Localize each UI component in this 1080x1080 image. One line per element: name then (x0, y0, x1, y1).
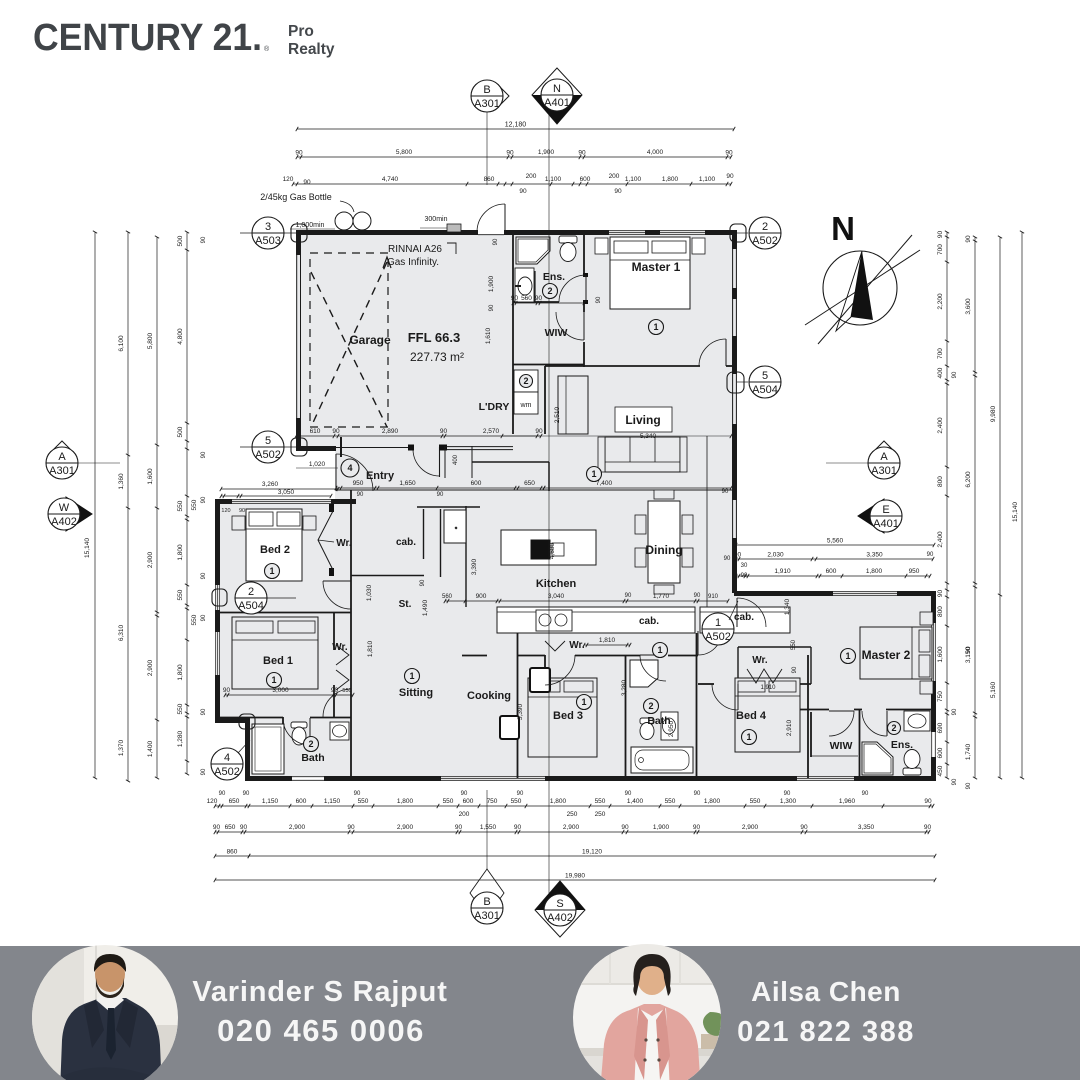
svg-text:90: 90 (693, 824, 701, 831)
svg-text:90: 90 (489, 304, 495, 311)
svg-text:B: B (483, 896, 490, 908)
svg-text:A504: A504 (752, 384, 778, 396)
svg-text:1: 1 (845, 651, 850, 661)
svg-text:600: 600 (937, 747, 944, 758)
svg-text:9,980: 9,980 (990, 405, 997, 422)
svg-text:Dining: Dining (645, 543, 682, 557)
svg-text:12,180: 12,180 (505, 122, 527, 129)
svg-text:800: 800 (937, 606, 944, 617)
svg-text:A301: A301 (871, 465, 897, 477)
svg-text:90: 90 (792, 666, 798, 673)
svg-text:2: 2 (248, 586, 254, 598)
svg-text:1,490: 1,490 (422, 599, 429, 616)
svg-text:550: 550 (443, 798, 454, 805)
svg-text:Varinder S Rajput: Varinder S Rajput (192, 976, 447, 1008)
svg-text:1,960: 1,960 (839, 798, 856, 805)
svg-text:650: 650 (524, 480, 535, 487)
svg-text:2/45kg Gas Bottle: 2/45kg Gas Bottle (260, 192, 332, 202)
svg-text:1,800: 1,800 (177, 544, 184, 561)
svg-text:2: 2 (762, 221, 768, 233)
svg-text:90: 90 (625, 593, 632, 599)
svg-text:90: 90 (965, 235, 972, 243)
svg-text:A402: A402 (51, 516, 77, 528)
svg-text:600: 600 (471, 480, 482, 487)
svg-text:1,800: 1,800 (866, 568, 883, 575)
svg-text:A502: A502 (705, 631, 731, 643)
svg-text:Master 1: Master 1 (632, 260, 681, 274)
svg-text:2,510: 2,510 (554, 406, 561, 423)
svg-text:200: 200 (526, 173, 537, 180)
svg-text:550: 550 (342, 688, 351, 694)
svg-text:A301: A301 (474, 910, 500, 922)
svg-text:550: 550 (665, 798, 676, 805)
svg-text:90: 90 (535, 428, 543, 435)
svg-text:2,400: 2,400 (937, 531, 944, 548)
svg-text:4,800: 4,800 (177, 328, 184, 345)
svg-text:90: 90 (201, 768, 207, 775)
svg-text:2,900: 2,900 (397, 824, 414, 831)
svg-text:1: 1 (657, 645, 662, 655)
svg-text:550: 550 (595, 798, 606, 805)
svg-text:2,200: 2,200 (937, 293, 944, 310)
svg-text:3,000: 3,000 (272, 687, 289, 694)
svg-text:90: 90 (295, 150, 303, 157)
svg-text:90: 90 (722, 489, 729, 495)
svg-text:90: 90 (437, 492, 444, 498)
svg-text:2,900: 2,900 (289, 824, 306, 831)
svg-text:1: 1 (746, 732, 751, 742)
svg-text:2: 2 (547, 286, 552, 296)
svg-text:Wr.: Wr. (752, 655, 768, 666)
svg-text:500: 500 (177, 235, 184, 246)
svg-text:2,950: 2,950 (668, 720, 675, 737)
svg-text:Pro: Pro (288, 23, 314, 40)
svg-text:2,400: 2,400 (937, 417, 944, 434)
svg-text:15,140: 15,140 (84, 538, 91, 558)
svg-text:90: 90 (614, 188, 622, 195)
svg-text:1,740: 1,740 (965, 743, 972, 760)
svg-text:90: 90 (493, 238, 499, 245)
svg-text:Bed 2: Bed 2 (260, 544, 290, 556)
svg-text:90: 90 (201, 496, 207, 503)
svg-text:Wr.: Wr. (336, 538, 352, 549)
svg-text:1,550: 1,550 (480, 824, 497, 831)
svg-text:6,200: 6,200 (965, 471, 972, 488)
svg-text:1,000min: 1,000min (296, 222, 325, 229)
svg-text:1: 1 (269, 566, 274, 576)
svg-text:4,740: 4,740 (382, 176, 399, 183)
svg-text:250: 250 (595, 811, 606, 818)
svg-text:Ens.: Ens. (543, 271, 565, 283)
svg-text:6,100: 6,100 (118, 335, 125, 352)
svg-text:1,900: 1,900 (538, 149, 555, 156)
svg-text:cab.: cab. (396, 537, 416, 548)
svg-text:90: 90 (331, 687, 339, 694)
svg-text:90: 90 (357, 492, 364, 498)
svg-text:560: 560 (521, 295, 532, 302)
svg-text:650: 650 (229, 798, 240, 805)
svg-text:5,560: 5,560 (827, 538, 844, 545)
svg-text:90: 90 (506, 150, 514, 157)
svg-text:250: 250 (567, 811, 578, 818)
svg-text:90: 90 (927, 552, 934, 558)
svg-text:120: 120 (283, 176, 294, 183)
svg-text:1,400: 1,400 (147, 740, 154, 757)
svg-text:2: 2 (308, 739, 313, 749)
svg-text:90: 90 (535, 295, 543, 302)
svg-text:A502: A502 (255, 449, 281, 461)
svg-text:Gas Infinity.: Gas Infinity. (387, 257, 439, 268)
svg-text:1,300: 1,300 (780, 798, 797, 805)
svg-text:3,390: 3,390 (471, 558, 478, 575)
svg-text:950: 950 (909, 568, 920, 575)
svg-text:750: 750 (487, 798, 498, 805)
svg-text:1: 1 (591, 469, 596, 479)
svg-text:Bed 1: Bed 1 (263, 655, 293, 667)
svg-text:90: 90 (924, 798, 932, 805)
svg-text:1,100: 1,100 (625, 176, 642, 183)
svg-text:1,280: 1,280 (177, 730, 184, 747)
svg-text:CENTURY 21.: CENTURY 21. (33, 17, 262, 59)
svg-text:90: 90 (201, 451, 207, 458)
svg-text:1,800: 1,800 (704, 798, 721, 805)
svg-text:A401: A401 (873, 518, 899, 530)
svg-text:2,910: 2,910 (786, 719, 793, 736)
svg-text:7,400: 7,400 (596, 480, 613, 487)
svg-text:2,900: 2,900 (147, 659, 154, 676)
svg-text:®: ® (264, 45, 270, 53)
svg-text:90: 90 (596, 296, 602, 303)
svg-text:Garage: Garage (349, 333, 391, 347)
svg-text:90: 90 (724, 556, 731, 562)
svg-text:1,800: 1,800 (662, 176, 679, 183)
svg-text:1,900: 1,900 (488, 275, 495, 292)
svg-text:90: 90 (201, 572, 207, 579)
svg-text:5,800: 5,800 (396, 149, 413, 156)
svg-text:90: 90 (243, 791, 250, 797)
svg-text:600: 600 (826, 568, 837, 575)
svg-text:A502: A502 (752, 235, 778, 247)
svg-text:90: 90 (511, 295, 519, 302)
svg-text:860: 860 (484, 176, 495, 183)
svg-text:1,900: 1,900 (653, 824, 670, 831)
svg-text:600: 600 (463, 798, 474, 805)
svg-text:90: 90 (952, 371, 958, 378)
svg-text:550: 550 (791, 639, 797, 650)
svg-text:550: 550 (358, 798, 369, 805)
svg-text:Wr.: Wr. (569, 640, 585, 651)
svg-text:120: 120 (221, 508, 230, 514)
svg-text:90: 90 (621, 824, 629, 831)
svg-text:690: 690 (937, 722, 944, 733)
svg-text:A502: A502 (214, 766, 240, 778)
svg-text:A504: A504 (238, 600, 264, 612)
svg-text:Ailsa Chen: Ailsa Chen (751, 976, 901, 1007)
svg-text:1,910: 1,910 (774, 568, 791, 575)
svg-text:1,150: 1,150 (262, 798, 279, 805)
svg-text:90: 90 (725, 150, 733, 157)
svg-text:1,030: 1,030 (366, 584, 373, 601)
svg-text:1,610: 1,610 (485, 327, 492, 344)
svg-text:550: 550 (177, 589, 184, 600)
svg-text:90: 90 (578, 150, 586, 157)
svg-text:90: 90 (201, 708, 207, 715)
svg-text:Bath: Bath (301, 752, 324, 764)
svg-text:90: 90 (625, 791, 632, 797)
svg-text:550: 550 (177, 703, 184, 714)
svg-text:1,150: 1,150 (324, 798, 341, 805)
svg-text:Wr.: Wr. (332, 642, 348, 653)
svg-text:4: 4 (224, 752, 230, 764)
svg-text:3: 3 (265, 221, 271, 233)
svg-text:1: 1 (715, 617, 721, 629)
svg-text:1,370: 1,370 (118, 739, 125, 756)
svg-text:E: E (882, 504, 889, 516)
svg-text:020 465 0006: 020 465 0006 (217, 1013, 425, 1048)
svg-text:550: 550 (511, 798, 522, 805)
svg-text:1,340: 1,340 (784, 598, 791, 615)
svg-text:5: 5 (265, 435, 271, 447)
svg-text:550: 550 (191, 614, 198, 625)
svg-text:90: 90 (420, 579, 426, 586)
svg-text:6,310: 6,310 (118, 624, 125, 641)
svg-text:A401: A401 (544, 97, 570, 109)
svg-text:90: 90 (784, 791, 791, 797)
svg-text:90: 90 (937, 590, 944, 598)
svg-text:3,390: 3,390 (517, 703, 524, 720)
svg-text:2,890: 2,890 (382, 428, 399, 435)
svg-text:1,810: 1,810 (599, 637, 616, 644)
svg-text:1: 1 (271, 675, 276, 685)
svg-text:Kitchen: Kitchen (536, 578, 577, 590)
svg-text:90: 90 (514, 824, 522, 831)
svg-text:N: N (831, 210, 855, 247)
svg-text:1: 1 (409, 671, 414, 681)
svg-text:1,770: 1,770 (653, 593, 670, 600)
svg-text:1: 1 (653, 322, 658, 332)
svg-text:550: 550 (177, 500, 184, 511)
svg-text:A: A (58, 451, 66, 463)
svg-text:550: 550 (191, 499, 198, 510)
svg-text:3,350: 3,350 (858, 824, 875, 831)
svg-text:90: 90 (741, 573, 748, 579)
svg-text:610: 610 (310, 428, 321, 435)
svg-text:2,900: 2,900 (563, 824, 580, 831)
svg-text:2: 2 (891, 723, 896, 733)
svg-text:90: 90 (347, 824, 355, 831)
svg-text:600: 600 (296, 798, 307, 805)
svg-text:90: 90 (219, 791, 226, 797)
svg-text:90: 90 (303, 179, 311, 186)
svg-text:90: 90 (726, 173, 734, 180)
svg-text:3,350: 3,350 (866, 552, 883, 559)
svg-text:400: 400 (937, 367, 944, 378)
svg-text:A402: A402 (547, 912, 573, 924)
svg-text:3,600: 3,600 (965, 298, 972, 315)
svg-text:L'DRY: L'DRY (479, 401, 510, 413)
svg-text:400: 400 (453, 454, 459, 465)
svg-text:90: 90 (517, 791, 524, 797)
svg-text:1,400: 1,400 (627, 798, 644, 805)
svg-text:2,900: 2,900 (147, 551, 154, 568)
svg-text:021 822 388: 021 822 388 (737, 1016, 915, 1048)
svg-text:90: 90 (440, 428, 448, 435)
svg-text:90: 90 (201, 236, 207, 243)
svg-text:2,900: 2,900 (742, 824, 759, 831)
svg-text:90: 90 (519, 188, 527, 195)
svg-text:90: 90 (862, 791, 869, 797)
svg-text:A503: A503 (255, 235, 281, 247)
svg-text:600: 600 (580, 176, 591, 183)
svg-text:90: 90 (694, 791, 701, 797)
svg-text:90: 90 (455, 824, 463, 831)
svg-text:Realty: Realty (288, 41, 335, 58)
svg-text:30: 30 (741, 563, 748, 569)
svg-text:3,040: 3,040 (548, 593, 565, 600)
svg-text:St.: St. (399, 599, 412, 610)
svg-text:Cooking: Cooking (467, 690, 511, 702)
svg-text:wm: wm (520, 402, 532, 409)
svg-text:450: 450 (937, 765, 944, 776)
svg-text:2,570: 2,570 (483, 428, 500, 435)
svg-text:A301: A301 (49, 465, 75, 477)
svg-text:90: 90 (694, 593, 701, 599)
svg-text:700: 700 (937, 244, 944, 255)
svg-text:19,120: 19,120 (582, 849, 602, 856)
svg-text:90: 90 (239, 508, 245, 514)
svg-text:700: 700 (937, 348, 944, 359)
svg-text:4: 4 (347, 463, 352, 473)
svg-text:90: 90 (332, 428, 340, 435)
svg-text:A301: A301 (474, 98, 500, 110)
svg-text:227.73 m²: 227.73 m² (410, 350, 464, 364)
svg-text:Bed 3: Bed 3 (553, 710, 583, 722)
svg-text:4,000: 4,000 (647, 149, 664, 156)
svg-text:90: 90 (800, 824, 808, 831)
svg-text:300min: 300min (425, 216, 448, 223)
svg-text:900: 900 (476, 593, 487, 600)
svg-text:90: 90 (240, 824, 248, 831)
svg-text:1,360: 1,360 (118, 473, 125, 490)
svg-text:RINNAI A26: RINNAI A26 (388, 244, 442, 255)
svg-text:5,340: 5,340 (640, 433, 657, 440)
svg-text:90: 90 (213, 824, 221, 831)
svg-text:FFL 66.3: FFL 66.3 (408, 330, 461, 345)
svg-text:1,910: 1,910 (760, 685, 776, 691)
svg-text:910: 910 (708, 594, 719, 600)
svg-text:S: S (556, 898, 563, 910)
svg-text:950: 950 (353, 480, 364, 487)
svg-text:cab.: cab. (734, 612, 754, 623)
svg-text:200: 200 (609, 173, 620, 180)
svg-text:1,800: 1,800 (177, 664, 184, 681)
svg-text:3,050: 3,050 (278, 489, 295, 496)
svg-text:90: 90 (734, 552, 742, 559)
svg-text:650: 650 (225, 824, 236, 831)
svg-text:1,020: 1,020 (309, 461, 326, 468)
svg-text:500: 500 (177, 426, 184, 437)
svg-text:750: 750 (937, 691, 944, 702)
svg-text:1,810: 1,810 (367, 640, 374, 657)
svg-text:860: 860 (227, 849, 238, 856)
svg-text:3,260: 3,260 (262, 481, 279, 488)
svg-text:1,800: 1,800 (550, 798, 567, 805)
svg-text:90: 90 (354, 791, 361, 797)
svg-text:Living: Living (625, 413, 660, 427)
svg-text:Entry: Entry (366, 470, 395, 482)
svg-text:Bed 4: Bed 4 (736, 710, 767, 722)
svg-text:2,030: 2,030 (767, 552, 784, 559)
svg-text:550: 550 (750, 798, 761, 805)
svg-text:Sitting: Sitting (399, 687, 433, 699)
svg-text:90: 90 (924, 824, 932, 831)
svg-text:3,150: 3,150 (965, 646, 972, 663)
svg-text:W: W (59, 502, 70, 514)
svg-text:3,280: 3,280 (621, 679, 628, 696)
svg-text:200: 200 (459, 811, 470, 818)
svg-text:90: 90 (937, 231, 944, 239)
svg-text:2: 2 (523, 376, 528, 386)
svg-text:4,680: 4,680 (549, 542, 556, 559)
svg-text:90: 90 (201, 614, 207, 621)
svg-text:90: 90 (952, 778, 958, 785)
svg-text:560: 560 (442, 594, 453, 600)
svg-text:WIW: WIW (545, 327, 568, 339)
svg-text:120: 120 (207, 798, 218, 805)
svg-text:WIW: WIW (830, 740, 853, 752)
svg-text:B: B (483, 84, 490, 96)
svg-text:2: 2 (648, 701, 653, 711)
svg-text:Ens.: Ens. (891, 739, 913, 751)
svg-text:cab.: cab. (639, 616, 659, 627)
svg-text:1,600: 1,600 (937, 646, 944, 663)
svg-text:5: 5 (762, 370, 768, 382)
svg-text:5,800: 5,800 (147, 332, 154, 349)
svg-text:15,140: 15,140 (1012, 502, 1019, 522)
svg-text:5,160: 5,160 (990, 681, 997, 698)
svg-text:Master 2: Master 2 (862, 648, 911, 662)
svg-text:90: 90 (223, 687, 231, 694)
svg-text:1,600: 1,600 (147, 468, 154, 485)
svg-text:1,650: 1,650 (399, 480, 416, 487)
svg-text:1,100: 1,100 (545, 176, 562, 183)
svg-text:90: 90 (966, 782, 972, 789)
svg-text:A: A (880, 451, 888, 463)
svg-text:800: 800 (937, 476, 944, 487)
svg-text:1,100: 1,100 (699, 176, 716, 183)
svg-text:1,800: 1,800 (397, 798, 414, 805)
svg-text:19,980: 19,980 (565, 873, 585, 880)
svg-text:90: 90 (952, 708, 958, 715)
svg-text:1: 1 (581, 697, 586, 707)
svg-text:N: N (553, 83, 561, 95)
svg-text:90: 90 (461, 791, 468, 797)
